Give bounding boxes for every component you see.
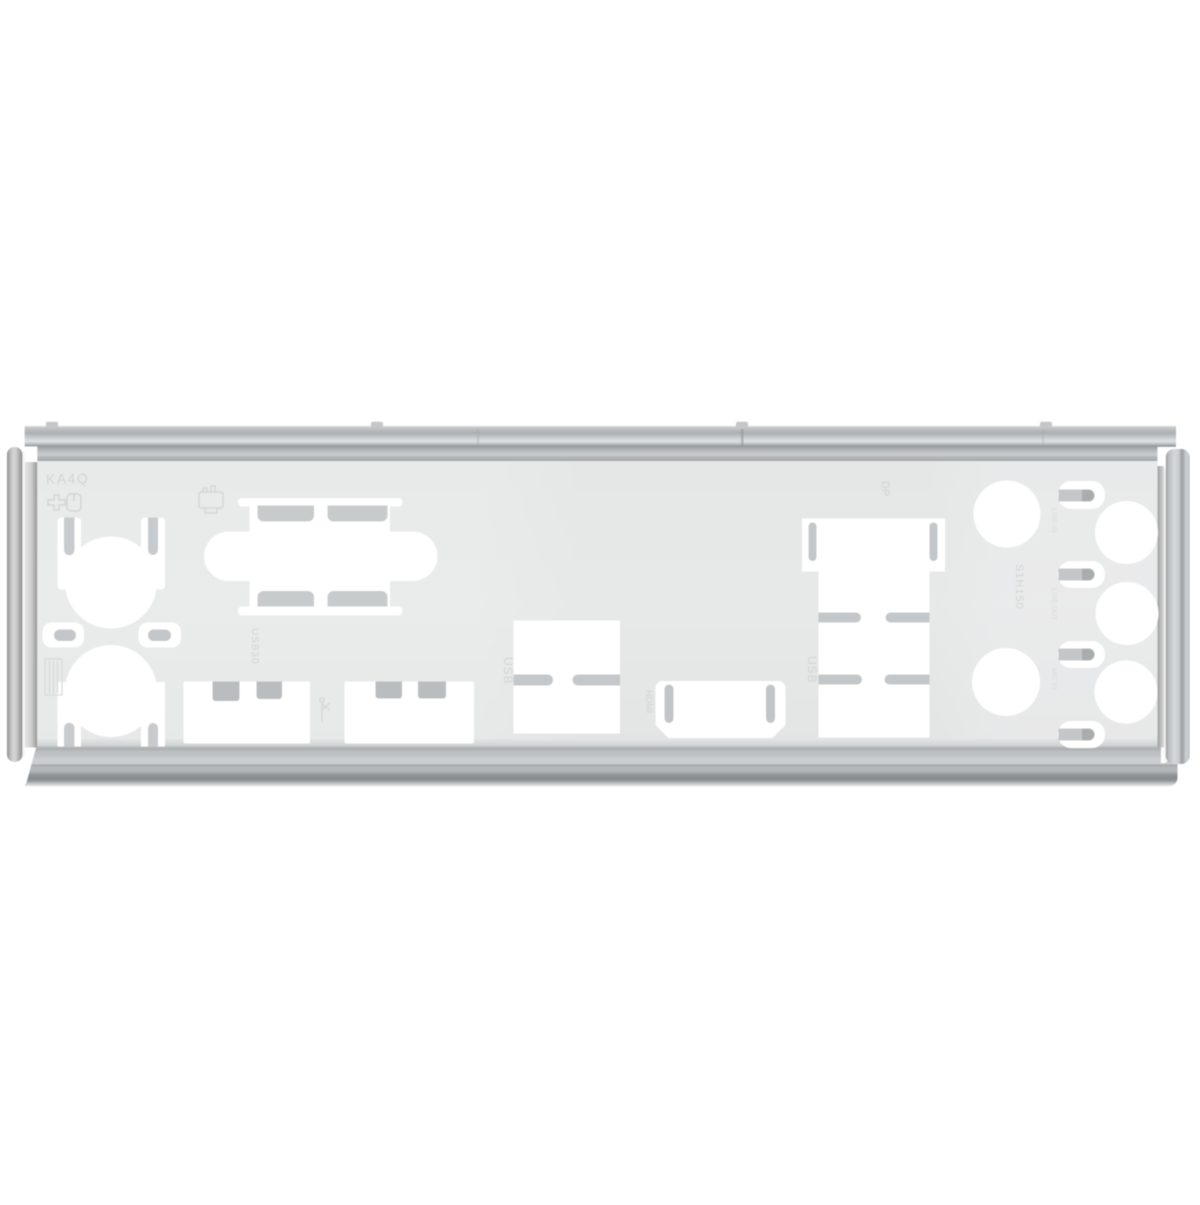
svg-text:LINE OUT: LINE OUT [1050,588,1057,621]
svg-text:HDMI: HDMI [644,690,654,713]
svg-text:KA4Q: KA4Q [46,470,90,487]
svg-text:DP: DP [879,481,891,496]
svg-text:S1H150: S1H150 [1013,564,1025,610]
svg-text:MIC IN: MIC IN [1050,668,1057,690]
svg-text:USB30: USB30 [249,628,260,665]
svg-text:USB: USB [501,657,515,685]
svg-text:LINE IN: LINE IN [1050,508,1057,533]
svg-text:USB: USB [805,656,819,684]
